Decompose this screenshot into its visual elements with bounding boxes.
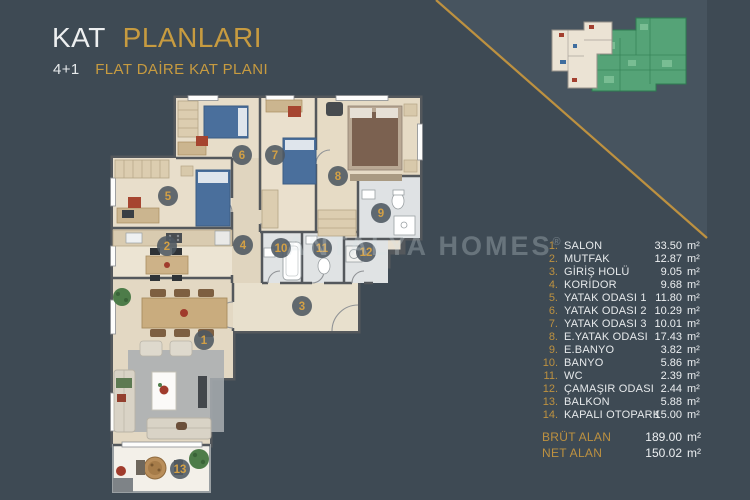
legend-row-number: 2. bbox=[528, 253, 558, 266]
room-marker-number: 9 bbox=[378, 208, 384, 220]
legend-row: 3.GİRİŞ HOLÜ9.05m² bbox=[528, 266, 708, 279]
legend-row: 4.KORİDOR9.68m² bbox=[528, 279, 708, 292]
room-marker-number: 1 bbox=[201, 335, 208, 347]
legend-row: 14.KAPALI OTOPARK15.00m² bbox=[528, 409, 708, 422]
room-marker-number: 8 bbox=[335, 171, 342, 183]
room-marker: 2 bbox=[157, 236, 177, 256]
legend-row-unit: m² bbox=[687, 318, 700, 331]
legend-row-label: GİRİŞ HOLÜ bbox=[564, 266, 630, 279]
legend-row-unit: m² bbox=[687, 305, 700, 318]
legend-row: 10.BANYO5.86m² bbox=[528, 357, 708, 370]
subtitle-text: FLAT DAİRE KAT PLANI bbox=[95, 61, 268, 78]
legend-row: 1.SALON33.50m² bbox=[528, 240, 708, 253]
room-marker: 4 bbox=[233, 235, 253, 255]
legend-row-unit: m² bbox=[687, 266, 700, 279]
legend-row-value: 2.44 bbox=[624, 383, 682, 396]
legend-row-number: 6. bbox=[528, 305, 558, 318]
legend-row-number: 14. bbox=[528, 409, 558, 422]
legend-row: 5.YATAK ODASI 111.80m² bbox=[528, 292, 708, 305]
gross-area-value: 189.00 bbox=[620, 429, 682, 445]
legend-row-label: KORİDOR bbox=[564, 279, 617, 292]
net-area-label: NET ALAN bbox=[542, 445, 602, 461]
room-marker: 1 bbox=[194, 330, 214, 350]
legend-row-label: E.BANYO bbox=[564, 344, 614, 357]
room-marker-number: 7 bbox=[272, 150, 278, 162]
legend-row: 11.WC2.39m² bbox=[528, 370, 708, 383]
legend-row-value: 2.39 bbox=[624, 370, 682, 383]
legend-row-unit: m² bbox=[687, 396, 700, 409]
legend-row-number: 3. bbox=[528, 266, 558, 279]
title-primary: KAT bbox=[52, 22, 105, 53]
room-marker-number: 2 bbox=[164, 241, 170, 253]
legend-row-unit: m² bbox=[687, 357, 700, 370]
legend-row: 9.E.BANYO3.82m² bbox=[528, 344, 708, 357]
room-marker: 8 bbox=[328, 166, 348, 186]
room-marker-number: 5 bbox=[165, 191, 172, 203]
legend-row-unit: m² bbox=[687, 253, 700, 266]
room-marker-number: 6 bbox=[239, 150, 245, 162]
legend-row-value: 15.00 bbox=[624, 409, 682, 422]
legend-row: 8.E.YATAK ODASI17.43m² bbox=[528, 331, 708, 344]
legend-row-unit: m² bbox=[687, 344, 700, 357]
net-area-row: NET ALAN 150.02 m² bbox=[528, 445, 708, 461]
watermark-text: ANTALYA HOMES bbox=[286, 231, 553, 261]
legend-row-unit: m² bbox=[687, 240, 700, 253]
legend-row: 13.BALKON5.88m² bbox=[528, 396, 708, 409]
apartment-floor-plan: 12345678910111213 bbox=[111, 96, 423, 493]
room-marker: 5 bbox=[158, 186, 178, 206]
room-marker: 9 bbox=[371, 203, 391, 223]
legend-row-number: 9. bbox=[528, 344, 558, 357]
legend-row-label: BALKON bbox=[564, 396, 610, 409]
legend-row-label: SALON bbox=[564, 240, 602, 253]
room-marker: 6 bbox=[232, 145, 252, 165]
legend-row-unit: m² bbox=[687, 370, 700, 383]
legend-row-number: 12. bbox=[528, 383, 558, 396]
legend-row: 6.YATAK ODASI 210.29m² bbox=[528, 305, 708, 318]
legend-row-number: 10. bbox=[528, 357, 558, 370]
legend-row-unit: m² bbox=[687, 279, 700, 292]
gross-area-row: BRÜT ALAN 189.00 m² bbox=[528, 429, 708, 445]
net-area-value: 150.02 bbox=[620, 445, 682, 461]
legend-row-label: BANYO bbox=[564, 357, 604, 370]
legend-row-value: 33.50 bbox=[624, 240, 682, 253]
net-area-unit: m² bbox=[687, 445, 701, 461]
legend-row: 7.YATAK ODASI 310.01m² bbox=[528, 318, 708, 331]
watermark: ANTALYA HOMES® bbox=[286, 231, 561, 262]
legend-row-value: 12.87 bbox=[624, 253, 682, 266]
room-marker: 3 bbox=[292, 296, 312, 316]
room-legend: 1.SALON33.50m²2.MUTFAK12.87m²3.GİRİŞ HOL… bbox=[528, 240, 708, 422]
page-title: KAT PLANLARI bbox=[52, 22, 262, 54]
legend-row-unit: m² bbox=[687, 383, 700, 396]
area-totals: BRÜT ALAN 189.00 m² NET ALAN 150.02 m² bbox=[528, 429, 708, 461]
legend-row-label: MUTFAK bbox=[564, 253, 610, 266]
legend-row-number: 7. bbox=[528, 318, 558, 331]
legend-row: 2.MUTFAK12.87m² bbox=[528, 253, 708, 266]
legend-row-value: 9.05 bbox=[624, 266, 682, 279]
legend-row: 12.ÇAMAŞIR ODASI2.44m² bbox=[528, 383, 708, 396]
legend-row-value: 10.01 bbox=[624, 318, 682, 331]
gross-area-unit: m² bbox=[687, 429, 701, 445]
legend-row-value: 3.82 bbox=[624, 344, 682, 357]
floor-plan-page: 12345678910111213 ANTALYA HOMES® KAT PLA… bbox=[0, 0, 750, 500]
legend-row-number: 8. bbox=[528, 331, 558, 344]
room-marker-number: 13 bbox=[174, 464, 187, 476]
subtitle-prefix: 4+1 bbox=[53, 61, 80, 78]
legend-row-value: 10.29 bbox=[624, 305, 682, 318]
room-marker: 7 bbox=[265, 145, 285, 165]
room-marker-number: 4 bbox=[240, 240, 247, 252]
legend-row-value: 5.88 bbox=[624, 396, 682, 409]
title-secondary: PLANLARI bbox=[123, 22, 262, 53]
legend-row-number: 5. bbox=[528, 292, 558, 305]
legend-row-number: 4. bbox=[528, 279, 558, 292]
legend-row-value: 17.43 bbox=[624, 331, 682, 344]
legend-row-unit: m² bbox=[687, 331, 700, 344]
legend-row-number: 13. bbox=[528, 396, 558, 409]
legend-row-unit: m² bbox=[687, 292, 700, 305]
legend-row-label: WC bbox=[564, 370, 583, 383]
room-marker: 13 bbox=[170, 459, 190, 479]
legend-row-value: 9.68 bbox=[624, 279, 682, 292]
legend-row-number: 1. bbox=[528, 240, 558, 253]
legend-row-value: 11.80 bbox=[624, 292, 682, 305]
page-subtitle: 4+1 FLAT DAİRE KAT PLANI bbox=[53, 61, 268, 78]
legend-row-number: 11. bbox=[528, 370, 558, 383]
gross-area-label: BRÜT ALAN bbox=[542, 429, 611, 445]
legend-row-value: 5.86 bbox=[624, 357, 682, 370]
room-marker-number: 3 bbox=[299, 301, 305, 313]
legend-row-unit: m² bbox=[687, 409, 700, 422]
